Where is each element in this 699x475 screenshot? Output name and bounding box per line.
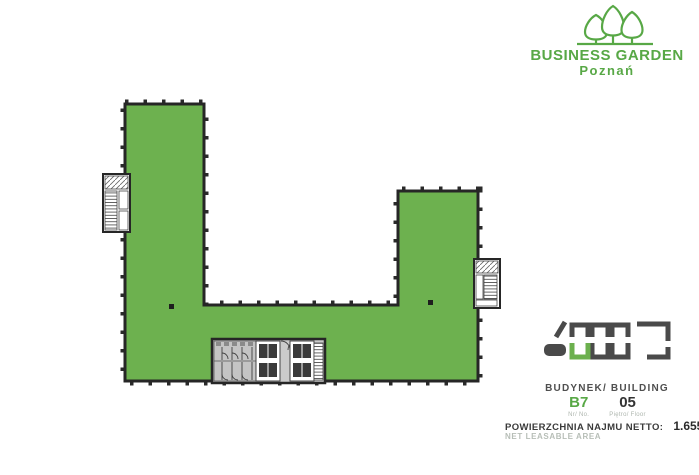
building-caption: Nr/ No. [568, 412, 589, 418]
floor-number: 05 [619, 394, 636, 411]
net-area-sublabel: NET LEASABLE AREA [505, 432, 601, 441]
net-area-row: POWIERZCHNIA NAJMU NETTO: 1.655,48 m² [505, 419, 699, 433]
site-plan-highlighted-building [572, 343, 588, 357]
page: BUSINESS GARDEN Poznań BUDYNEK/ BUILDING… [0, 0, 699, 475]
brand-city: Poznań [515, 63, 699, 78]
building-label: BUDYNEK/ BUILDING [515, 383, 699, 394]
brand-title: BUSINESS GARDEN [515, 47, 699, 64]
elevator-bank-a [256, 341, 280, 381]
column [169, 304, 174, 309]
floor-caption: Piętro/ Floor [609, 412, 646, 418]
column [428, 300, 433, 305]
core-stairs [314, 343, 323, 380]
trees-logo-icon [532, 2, 692, 48]
core [212, 339, 325, 383]
building-code: B7 [569, 394, 588, 411]
elevator-bank-b [290, 341, 314, 381]
net-area-value: 1.655,48 m² [673, 419, 699, 433]
right-stairwell [474, 259, 500, 308]
left-stairwell [103, 174, 130, 232]
toilets [214, 341, 256, 381]
building-codes: B7 Nr/ No. 05 Piętro/ Floor [515, 394, 699, 418]
site-plan-icon [540, 316, 680, 364]
